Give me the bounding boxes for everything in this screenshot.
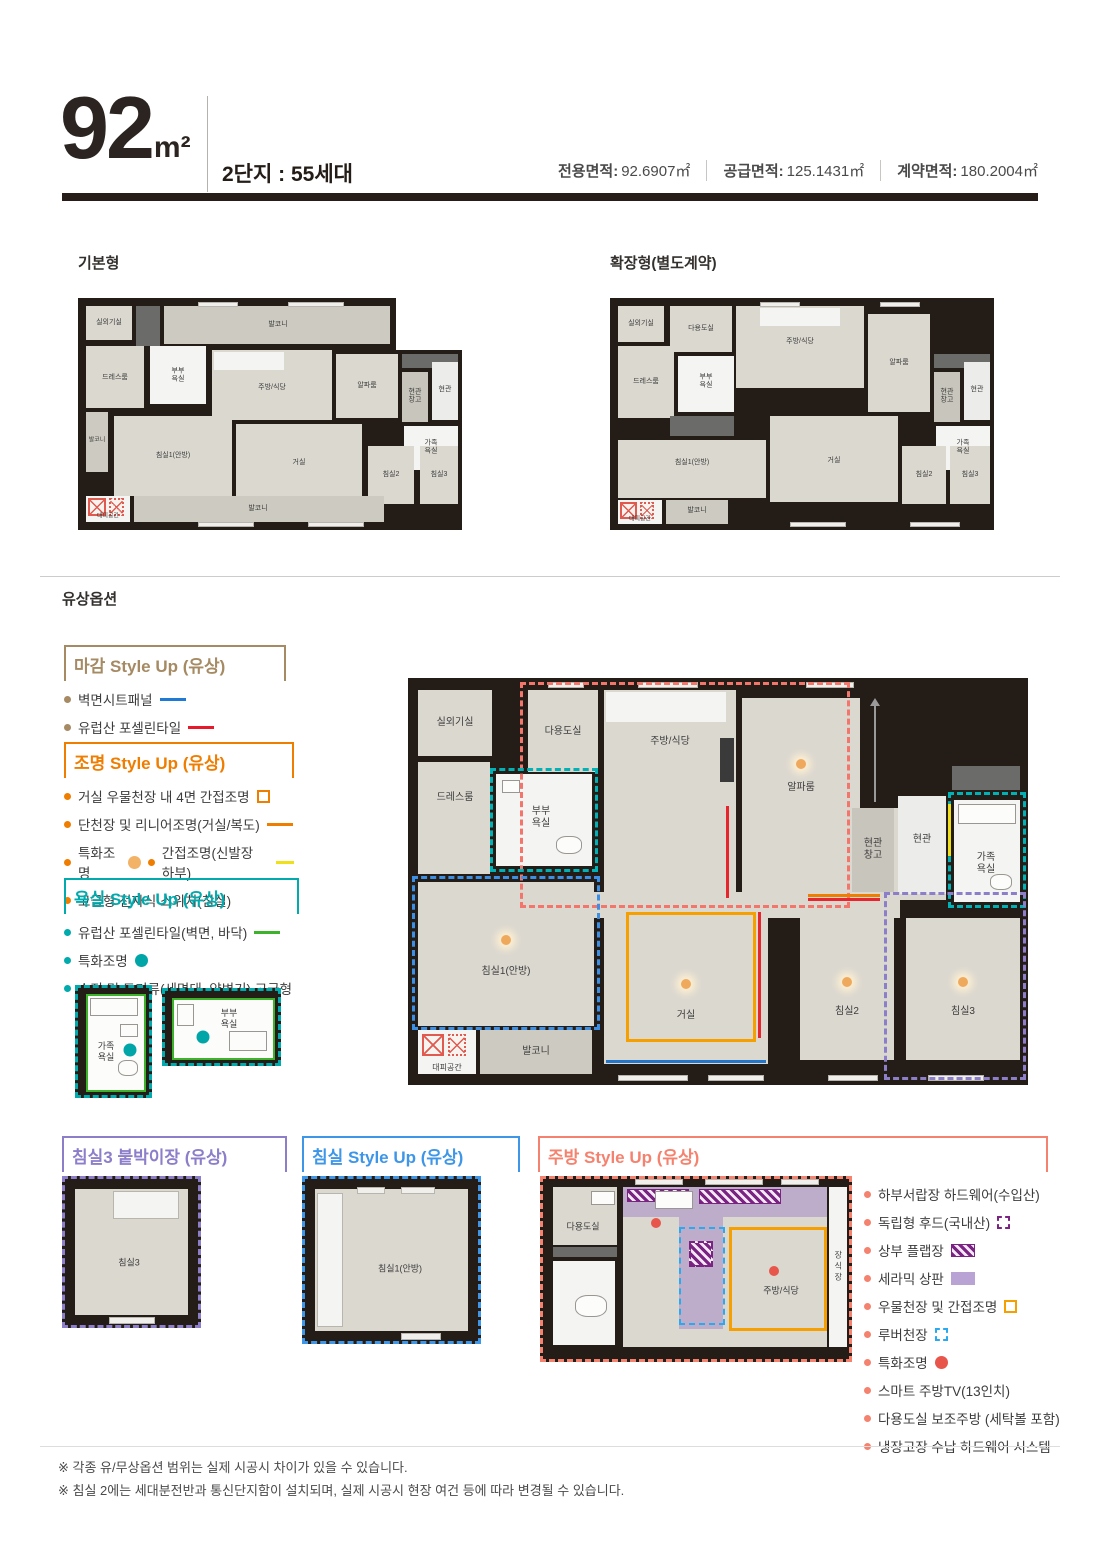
independent-hood <box>689 1241 713 1267</box>
legend-item: 상부 플랩장 <box>864 1240 1060 1260</box>
room-label-closet: 장식장 <box>833 1251 843 1284</box>
legend-item: 특화조명 <box>64 950 299 970</box>
window <box>708 1075 764 1081</box>
footnote-2: ※ 침실 2에는 세대분전반과 통신단지함이 설치되며, 실제 시공시 현장 여… <box>58 1479 624 1502</box>
room-label-dress: 드레스룸 <box>633 378 659 386</box>
sink <box>120 1024 138 1037</box>
bullet-icon <box>864 1415 871 1422</box>
room-label-bed3: 침실3 <box>118 1258 140 1269</box>
floorplan-options: 실외기실 다용도실 주방/식당 알파룸 드레스룸 부부 욕실 현관 창고 현관 … <box>408 678 1028 1085</box>
legend-kitchen-title: 주방 Style Up (유상) <box>538 1136 1048 1170</box>
room-label-bath-couple: 부부 욕실 <box>697 374 715 391</box>
room <box>136 306 160 346</box>
window <box>790 522 846 527</box>
teal-dot-icon <box>135 954 148 967</box>
legend-item: 우물천장 및 간접조명 <box>864 1296 1060 1316</box>
window <box>401 1187 435 1194</box>
window <box>705 1179 763 1185</box>
legend-bath-title: 욕실 Style Up (유상) <box>64 878 299 912</box>
legend-item: 단천장 및 리니어조명(거실/복도) <box>64 814 294 834</box>
room <box>553 1247 617 1257</box>
well-ceiling-outline <box>729 1227 827 1331</box>
room-label-storage: 현관 창고 <box>406 389 424 406</box>
header-divider <box>207 96 208 192</box>
bullet-icon <box>864 1387 871 1394</box>
room-label-entrance: 현관 <box>971 386 984 394</box>
room-label-bed2: 침실2 <box>916 471 933 479</box>
room-label-bath-family: 가족 욕실 <box>94 1041 117 1063</box>
legend-item: 스마트 주방TV(13인치) <box>864 1380 1060 1400</box>
window <box>288 302 344 307</box>
room-label-bath-couple: 부부 욕실 <box>528 806 554 830</box>
room-label-kitchen: 주방/식당 <box>258 384 286 392</box>
family-bath-option-zone <box>948 792 1026 908</box>
sink <box>655 1191 693 1209</box>
window <box>880 302 920 307</box>
area-metrics: 전용면적: 92.6907㎡ 공급면적: 125.1431㎡ 계약면적: 180… <box>558 160 1038 181</box>
red-dot-icon <box>935 1356 948 1369</box>
plan-notch <box>396 298 462 350</box>
hatch-swatch-icon <box>951 1244 975 1257</box>
room-label-bed3: 침실3 <box>962 471 979 479</box>
legend-item: 벽면시트패널 <box>64 689 286 709</box>
room-label-alpha: 알파룸 <box>787 782 815 794</box>
bullet-icon <box>864 1191 871 1198</box>
thumb-couple-bath: 부부 욕실 <box>162 988 281 1066</box>
room-label-bed1: 침실1(안방) <box>378 1264 422 1275</box>
thumb-kitchen-plan: 다용도실 주방/식당 장식장 <box>540 1176 852 1362</box>
room-label-alpha: 알파룸 <box>357 382 376 390</box>
room-label-bed2: 침실2 <box>383 471 400 479</box>
room-label-storage: 현관 창고 <box>860 838 886 862</box>
legend-finish: 마감 Style Up (유상) 벽면시트패널 유럽산 포셀린타일 <box>64 645 286 745</box>
room-label-balcony: 발코니 <box>268 321 287 329</box>
room-label-balcony: 발코니 <box>522 1046 550 1058</box>
metric-contract: 계약면적: 180.2004㎡ <box>880 160 1038 181</box>
window <box>760 302 800 307</box>
bullet-icon <box>864 1303 871 1310</box>
bullet-icon <box>864 1331 871 1338</box>
blue-line-icon <box>160 698 186 701</box>
room-label-utility: 다용도실 <box>566 1222 599 1233</box>
orange-line-icon <box>267 823 293 826</box>
blue-dashed-square-icon <box>935 1328 948 1341</box>
thumb-bed3: 침실3 <box>62 1176 201 1328</box>
room-label-bath-couple: 부부 욕실 <box>217 1008 240 1030</box>
accent-light-dot <box>197 1031 210 1044</box>
orange-square-icon <box>1004 1300 1017 1313</box>
legend-finish-title: 마감 Style Up (유상) <box>64 645 286 679</box>
bullet-icon <box>64 821 71 828</box>
toilet <box>575 1295 607 1317</box>
room-label-kitchen: 주방/식당 <box>786 338 814 346</box>
room-label-living: 거실 <box>677 1010 695 1022</box>
refuge-x-box <box>422 1034 444 1056</box>
window <box>198 522 254 527</box>
room-label-dress: 드레스룸 <box>102 374 128 382</box>
room-label-utility: 다용도실 <box>545 726 582 738</box>
kitchen-counter <box>214 352 284 370</box>
room-label-bed1: 침실1(안방) <box>675 459 709 467</box>
brochure-page: 92 m² 2단지 : 55세대 전용면적: 92.6907㎡ 공급면적: 12… <box>0 0 1100 1564</box>
legend-item: 특화조명 간접조명(신발장 하부) <box>64 842 294 882</box>
section-divider <box>40 576 1060 577</box>
room-label-outdoor: 실외기실 <box>628 320 654 328</box>
room-label-bath-family: 가족 욕실 <box>954 440 972 457</box>
legend-bed3-title: 침실3 붙박이장 (유상) <box>62 1136 287 1170</box>
solid-swatch-icon <box>951 1272 975 1285</box>
bullet-icon <box>148 859 155 866</box>
unit-size: 92 m² <box>60 88 191 169</box>
room-label-bed3: 침실3 <box>951 1006 975 1018</box>
flap-cabinet <box>699 1189 781 1204</box>
purple-dashed-square-icon <box>997 1216 1010 1229</box>
window <box>635 1179 683 1185</box>
extended-plan-title: 확장형(별도계약) <box>610 252 717 273</box>
room-label-bed2: 침실2 <box>835 1006 859 1018</box>
legend-bedroom: 침실 Style Up (유상) <box>302 1136 520 1170</box>
bullet-icon <box>864 1359 871 1366</box>
legend-bedroom-title: 침실 Style Up (유상) <box>302 1136 520 1170</box>
room-label-outdoor: 실외기실 <box>437 717 474 729</box>
room-label-kitchen: 주방/식당 <box>650 736 690 748</box>
accent-light-dot <box>124 1044 137 1057</box>
thumb-bed1: 침실1(안방) <box>302 1176 481 1344</box>
entry-arrow <box>874 706 876 802</box>
room-label-bed1: 침실1(안방) <box>156 452 190 460</box>
accent-light-dot <box>501 935 511 945</box>
bathtub <box>229 1031 267 1051</box>
bullet-icon <box>864 1247 871 1254</box>
window <box>401 1333 441 1340</box>
room-label-refuge: 대피공간 <box>97 513 119 520</box>
accent-light-dot <box>842 977 852 987</box>
legend-lighting-title: 조명 Style Up (유상) <box>64 742 294 776</box>
well-ceiling-outline <box>626 912 756 1042</box>
bullet-icon <box>64 985 71 992</box>
footnote-1: ※ 각종 유/무상옵션 범위는 실제 시공시 차이가 있을 수 있습니다. <box>58 1456 408 1479</box>
complex-units: 2단지 : 55세대 <box>222 158 353 188</box>
legend-item: 독립형 후드(국내산) <box>864 1212 1060 1232</box>
room <box>952 766 1020 790</box>
accent-light-icon <box>128 856 141 869</box>
room-label-outdoor: 실외기실 <box>96 319 122 327</box>
metric-exclusive: 전용면적: 92.6907㎡ <box>558 160 690 181</box>
bullet-icon <box>64 724 71 731</box>
room-label-entrance: 현관 <box>913 834 931 846</box>
room-label-balcony: 발코니 <box>248 505 267 513</box>
legend-kitchen-items: 하부서랍장 하드웨어(수입산) 독립형 후드(국내산) 상부 플랩장 세라믹 상… <box>864 1176 1060 1464</box>
unit-size-unit: m² <box>154 131 191 165</box>
unit-size-number: 92 <box>60 88 152 169</box>
window <box>618 1075 688 1081</box>
entry-arrow-head <box>870 698 880 706</box>
kitchen-counter <box>760 308 840 326</box>
room <box>618 440 766 498</box>
footer-divider <box>40 1446 1060 1447</box>
room-label-bed3: 침실3 <box>431 471 448 479</box>
paid-options-title: 유상옵션 <box>62 588 117 609</box>
bullet-icon <box>64 929 71 936</box>
accent-light-dot <box>796 759 806 769</box>
legend-item: 하부서랍장 하드웨어(수입산) <box>864 1184 1060 1204</box>
yellow-line-icon <box>276 861 294 864</box>
window <box>109 1317 155 1324</box>
room <box>670 416 734 436</box>
bathtub <box>90 998 138 1016</box>
floorplan-basic: 실외기실 발코니 드레스룸 부부 욕실 주방/식당 알파룸 현관 창고 현관 가… <box>78 298 462 530</box>
accent-light-dot <box>651 1218 661 1228</box>
shoe-cabinet-indirect-line <box>948 804 951 856</box>
red-line-icon <box>188 726 214 729</box>
orange-square-icon <box>257 790 270 803</box>
header-rule <box>62 193 1038 201</box>
bed3-closet-option-zone <box>884 892 1026 1080</box>
room-label-refuge: 대피공간 <box>629 516 651 523</box>
bedroom-option-zone <box>412 876 600 1030</box>
legend-bed3-closet: 침실3 붙박이장 (유상) <box>62 1136 287 1170</box>
window <box>357 1187 385 1194</box>
bullet-icon <box>64 957 71 964</box>
room-label-entrance: 현관 <box>439 386 452 394</box>
bullet-icon <box>864 1219 871 1226</box>
floorplan-extended: 실외기실 다용도실 주방/식당 알파룸 드레스룸 부부 욕실 현관 창고 현관 … <box>610 298 994 530</box>
bullet-icon <box>64 793 71 800</box>
room-label-utility: 다용도실 <box>688 325 714 333</box>
metric-supply: 공급면적: 125.1431㎡ <box>706 160 864 181</box>
refuge-x-box <box>448 1034 466 1056</box>
room-label-kitchen: 주방/식당 <box>763 1286 799 1297</box>
window <box>781 1179 819 1185</box>
thumb-family-bath: 가족 욕실 <box>75 985 152 1098</box>
toilet <box>118 1060 138 1076</box>
room-label-bath-couple: 부부 욕실 <box>169 368 187 385</box>
room-label-balcony: 발코니 <box>89 437 106 444</box>
window <box>308 522 364 527</box>
bullet-icon <box>864 1275 871 1282</box>
legend-item: 유럽산 포셀린타일(벽면, 바닥) <box>64 922 299 942</box>
porcelain-line <box>758 912 761 1038</box>
legend-item: 세라믹 상판 <box>864 1268 1060 1288</box>
porcelain-line <box>808 898 880 901</box>
accent-light-dot <box>958 977 968 987</box>
room-label-balcony: 발코니 <box>687 507 706 515</box>
accent-light-dot <box>769 1266 779 1276</box>
legend-item: 특화조명 <box>864 1352 1060 1372</box>
linear-light-line <box>808 894 880 897</box>
window <box>910 522 960 527</box>
window <box>198 302 238 307</box>
bullet-icon <box>64 859 71 866</box>
legend-item: 거실 우물천장 내 4면 간접조명 <box>64 786 294 806</box>
basic-plan-title: 기본형 <box>78 252 119 273</box>
room-label-dress: 드레스룸 <box>437 792 474 804</box>
built-in-closet <box>113 1191 179 1219</box>
sink <box>591 1191 615 1205</box>
accent-light-dot <box>681 979 691 989</box>
room-label-bed1: 침실1(안방) <box>481 966 530 978</box>
room <box>800 918 894 1060</box>
room-label-bath-family: 가족 욕실 <box>973 852 999 876</box>
window <box>828 1075 878 1081</box>
porcelain-line <box>726 806 729 898</box>
legend-item: 다용도실 보조주방 (세탁볼 포함) <box>864 1408 1060 1428</box>
room-label-storage: 현관 창고 <box>938 389 956 406</box>
green-line-icon <box>254 931 280 934</box>
wall-sheet-panel <box>317 1193 343 1327</box>
bullet-icon <box>64 696 71 703</box>
room-label-bath-family: 가족 욕실 <box>422 440 440 457</box>
legend-kitchen: 주방 Style Up (유상) <box>538 1136 1048 1170</box>
room-label-living: 거실 <box>828 457 841 465</box>
room-label-refuge: 대피공간 <box>432 1063 461 1073</box>
room-label-alpha: 알파룸 <box>889 359 908 367</box>
room-label-living: 거실 <box>293 459 306 467</box>
legend-item: 유럽산 포셀린타일 <box>64 717 286 737</box>
room <box>418 762 490 874</box>
legend-item: 루버천장 <box>864 1324 1060 1344</box>
sink <box>177 1004 194 1026</box>
sheet-panel-line <box>606 1060 766 1063</box>
